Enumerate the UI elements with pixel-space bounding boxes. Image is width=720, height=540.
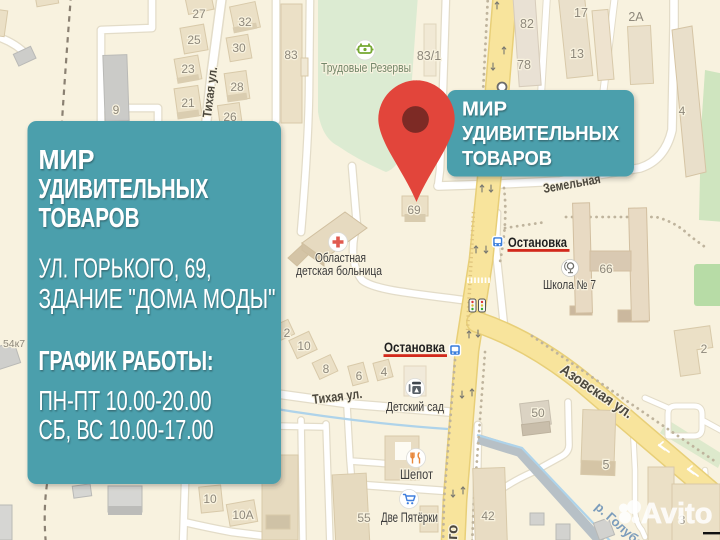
svg-text:Детский сад: Детский сад [386, 399, 444, 414]
svg-text:42: 42 [481, 509, 495, 523]
svg-text:ТОВАРОВ: ТОВАРОВ [39, 202, 140, 233]
svg-text:ЗДАНИЕ "ДОМА МОДЫ": ЗДАНИЕ "ДОМА МОДЫ" [39, 283, 276, 314]
svg-text:13: 13 [570, 47, 584, 61]
svg-text:54к7: 54к7 [3, 338, 25, 350]
svg-text:28: 28 [230, 80, 244, 94]
svg-text:УДИВИТЕЛЬНЫХ: УДИВИТЕЛЬНЫХ [462, 123, 620, 145]
svg-text:2А: 2А [628, 10, 644, 24]
svg-text:10А: 10А [232, 508, 253, 522]
svg-text:Остановка: Остановка [384, 339, 445, 355]
svg-text:УДИВИТЕЛЬНЫХ: УДИВИТЕЛЬНЫХ [39, 173, 209, 204]
svg-text:83: 83 [284, 48, 298, 62]
svg-text:4: 4 [679, 104, 686, 118]
svg-text:СБ, ВС 10.00-17.00: СБ, ВС 10.00-17.00 [39, 414, 214, 445]
svg-text:ТОВАРОВ: ТОВАРОВ [462, 148, 552, 170]
svg-text:66: 66 [599, 262, 613, 276]
svg-text:Областная: Областная [315, 251, 366, 265]
svg-text:МИР: МИР [39, 144, 95, 175]
svg-text:82: 82 [520, 17, 534, 31]
svg-text:Трудовые Резервы: Трудовые Резервы [321, 61, 411, 75]
svg-text:ПН-ПТ 10.00-20.00: ПН-ПТ 10.00-20.00 [39, 385, 212, 416]
svg-text:Остановка: Остановка [508, 235, 567, 250]
svg-text:69: 69 [407, 203, 421, 217]
svg-text:2: 2 [701, 342, 708, 356]
svg-text:32: 32 [238, 15, 252, 29]
svg-text:8: 8 [323, 362, 330, 376]
svg-text:Школа № 7: Школа № 7 [543, 278, 596, 292]
svg-text:27: 27 [192, 7, 206, 21]
svg-text:17: 17 [574, 6, 588, 20]
svg-text:21: 21 [181, 96, 195, 110]
svg-text:Avito: Avito [641, 498, 712, 530]
svg-text:9: 9 [113, 103, 120, 117]
svg-text:6: 6 [356, 369, 363, 383]
svg-text:10: 10 [297, 339, 311, 353]
svg-text:Шепот: Шепот [400, 467, 433, 482]
svg-text:50: 50 [531, 406, 545, 420]
svg-text:детская больница: детская больница [296, 264, 382, 278]
svg-text:2: 2 [284, 326, 291, 340]
svg-text:83/1: 83/1 [417, 49, 441, 63]
svg-text:МИР: МИР [462, 98, 507, 120]
svg-text:УЛ. ГОРЬКОГО, 69,: УЛ. ГОРЬКОГО, 69, [39, 253, 212, 284]
svg-text:ГРАФИК РАБОТЫ:: ГРАФИК РАБОТЫ: [39, 345, 214, 376]
svg-text:25: 25 [187, 33, 201, 47]
svg-text:го: го [444, 524, 462, 540]
svg-text:4: 4 [381, 365, 388, 379]
svg-text:10: 10 [203, 492, 217, 506]
svg-text:30: 30 [232, 41, 246, 55]
svg-text:55: 55 [357, 511, 371, 525]
svg-text:78: 78 [517, 58, 531, 72]
svg-text:23: 23 [181, 62, 195, 76]
svg-text:Две Пятёрки: Две Пятёрки [381, 510, 438, 525]
svg-text:5: 5 [603, 458, 610, 472]
